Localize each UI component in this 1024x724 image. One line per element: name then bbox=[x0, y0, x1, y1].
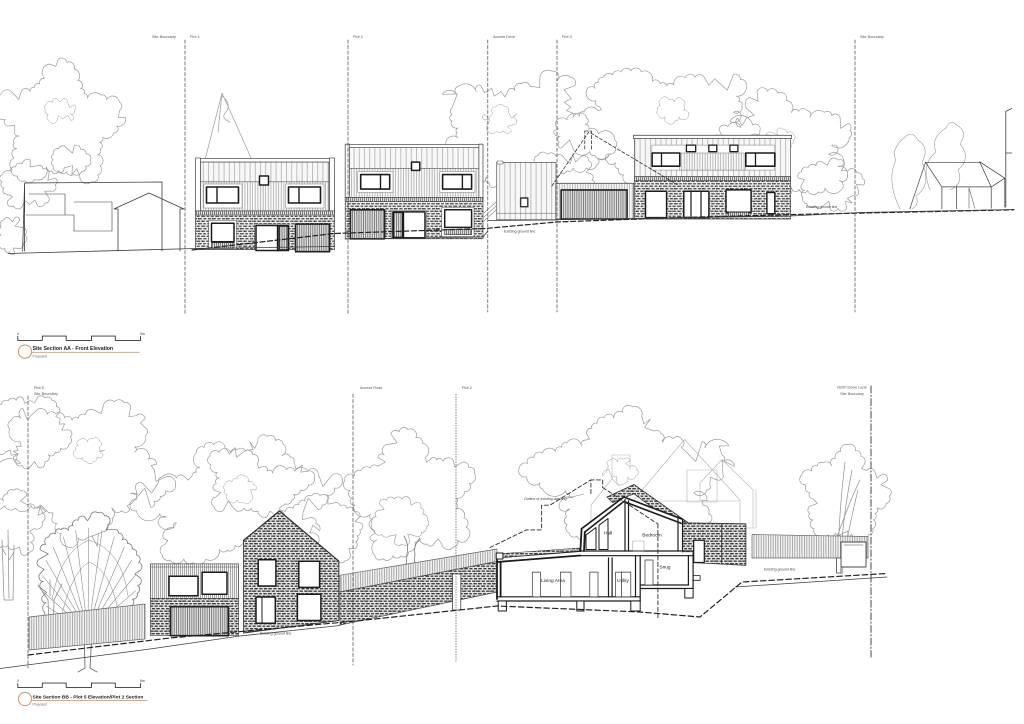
svg-text:Bedroom: Bedroom bbox=[642, 533, 661, 539]
svg-text:Site Boundary: Site Boundary bbox=[840, 392, 864, 396]
svg-text:Snug: Snug bbox=[659, 565, 671, 571]
svg-text:Proposed: Proposed bbox=[33, 354, 48, 358]
svg-text:Existing ground line: Existing ground line bbox=[504, 230, 535, 234]
svg-text:North Down Lane: North Down Lane bbox=[837, 386, 867, 390]
svg-text:Site Boundary: Site Boundary bbox=[860, 35, 884, 39]
svg-text:Plot 3: Plot 3 bbox=[562, 35, 572, 39]
svg-text:Site Boundary: Site Boundary bbox=[34, 392, 58, 396]
svg-text:Plot 1: Plot 1 bbox=[190, 35, 200, 39]
svg-text:Existing ground line: Existing ground line bbox=[806, 205, 837, 209]
svg-text:Site Section AA - Front Elevat: Site Section AA - Front Elevation bbox=[33, 346, 114, 352]
svg-text:Plot 2: Plot 2 bbox=[353, 35, 363, 39]
svg-text:Outline of existing dwelling: Outline of existing dwelling bbox=[524, 497, 567, 501]
svg-text:Existing ground line: Existing ground line bbox=[764, 568, 795, 572]
svg-text:Existing ground line: Existing ground line bbox=[260, 632, 291, 636]
svg-text:Living Area: Living Area bbox=[541, 578, 565, 584]
svg-text:Utility: Utility bbox=[617, 578, 629, 584]
svg-text:Plot 2: Plot 2 bbox=[462, 386, 472, 390]
svg-text:Access Road: Access Road bbox=[360, 386, 382, 390]
svg-text:Hall: Hall bbox=[604, 531, 612, 537]
svg-text:Proposed: Proposed bbox=[33, 703, 48, 707]
svg-text:5m: 5m bbox=[140, 679, 145, 683]
svg-text:Site Section BB - Plot 5 Eleva: Site Section BB - Plot 5 Elevation/Plot … bbox=[33, 694, 144, 700]
svg-text:Plot 5: Plot 5 bbox=[34, 386, 44, 390]
svg-text:5m: 5m bbox=[140, 332, 145, 336]
svg-text:Access Drive: Access Drive bbox=[493, 35, 515, 39]
svg-text:0: 0 bbox=[17, 679, 19, 683]
svg-text:0: 0 bbox=[17, 332, 19, 336]
svg-text:Site Boundary: Site Boundary bbox=[152, 35, 176, 39]
